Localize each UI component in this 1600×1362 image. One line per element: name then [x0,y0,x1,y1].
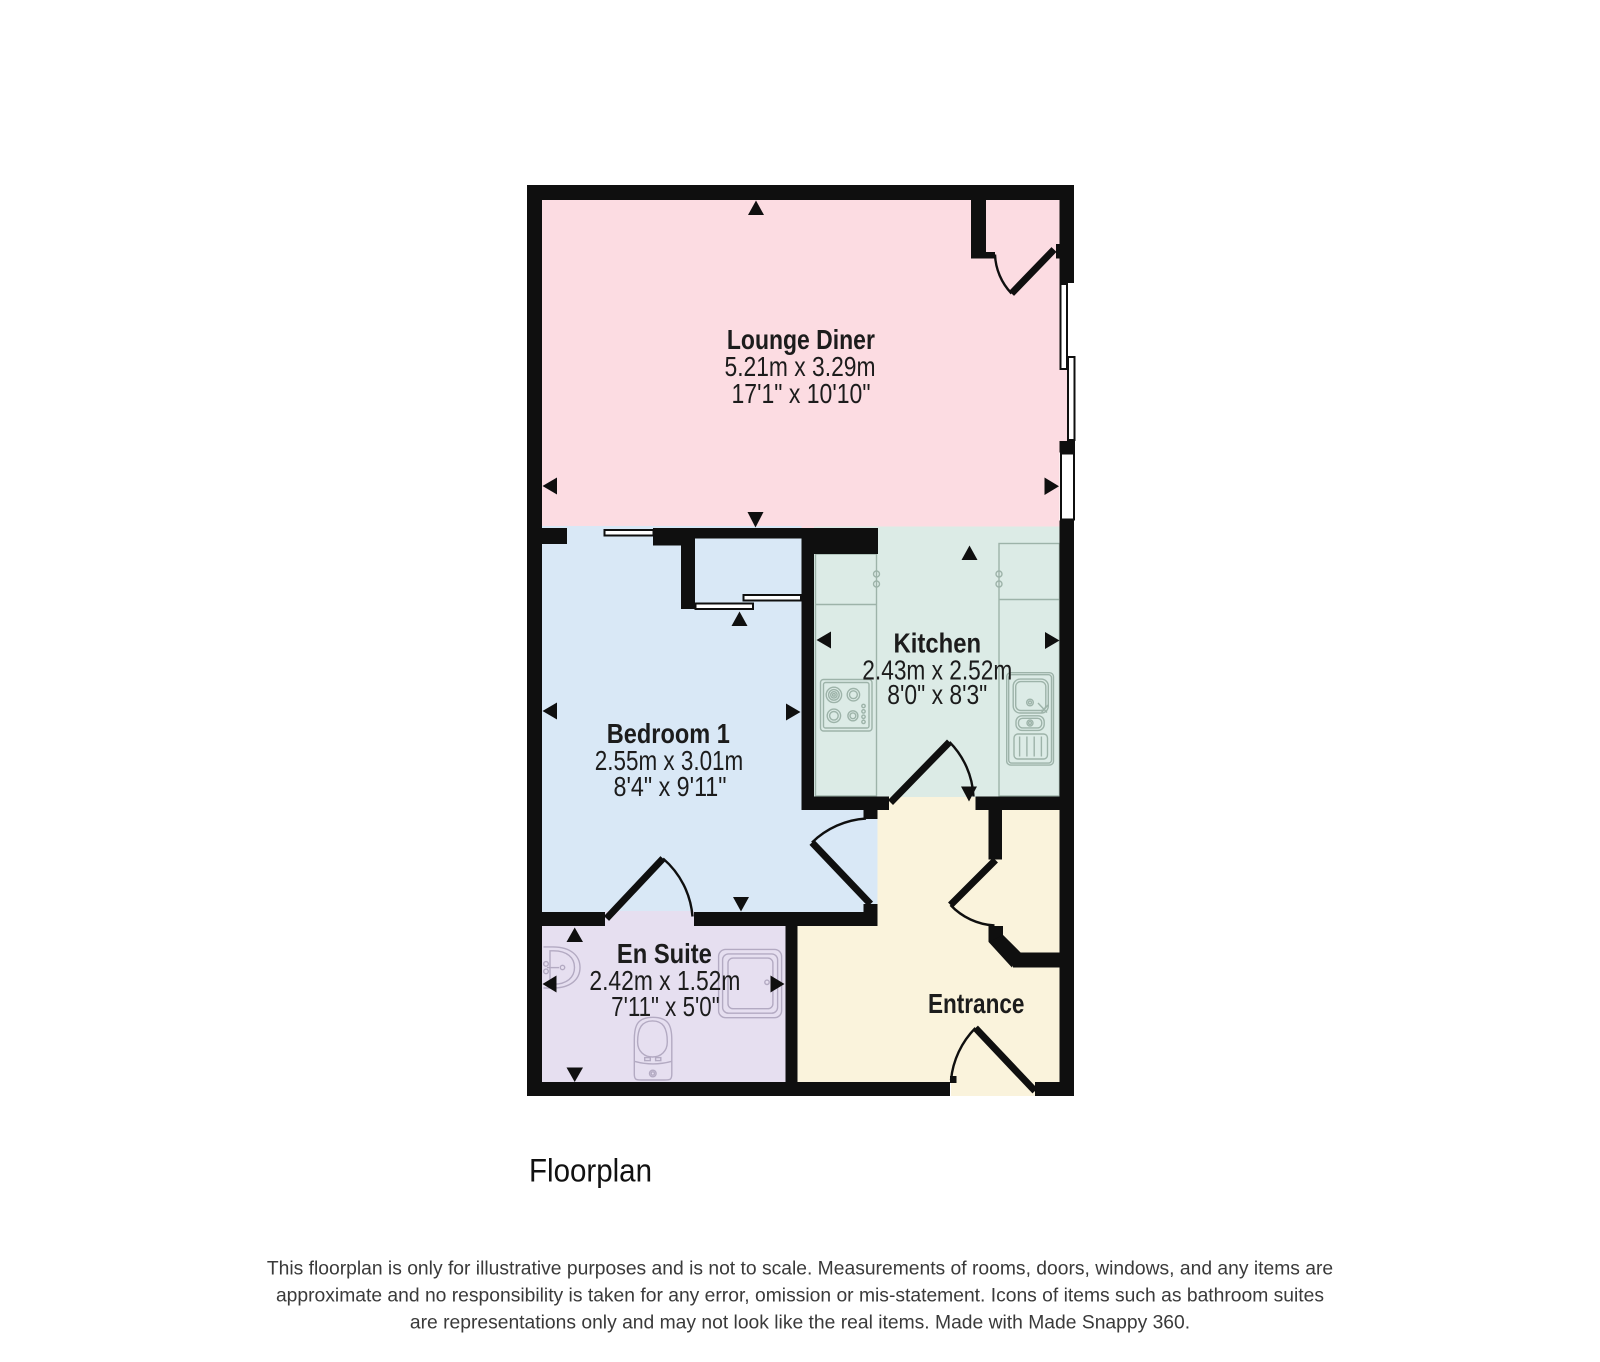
svg-text:7'11" x 5'0": 7'11" x 5'0" [611,991,720,1022]
svg-text:8'4" x 9'11": 8'4" x 9'11" [614,771,727,802]
svg-text:are representations only and m: are representations only and may not loo… [410,1313,1190,1334]
svg-text:17'1" x 10'10": 17'1" x 10'10" [732,378,871,409]
svg-text:approximate and no responsibil: approximate and no responsibility is tak… [276,1286,1324,1307]
svg-text:8'0" x 8'3": 8'0" x 8'3" [887,679,987,710]
svg-text:This floorplan is only for ill: This floorplan is only for illustrative … [267,1259,1333,1280]
svg-text:Floorplan: Floorplan [529,1153,652,1189]
svg-text:Entrance: Entrance [928,988,1025,1019]
